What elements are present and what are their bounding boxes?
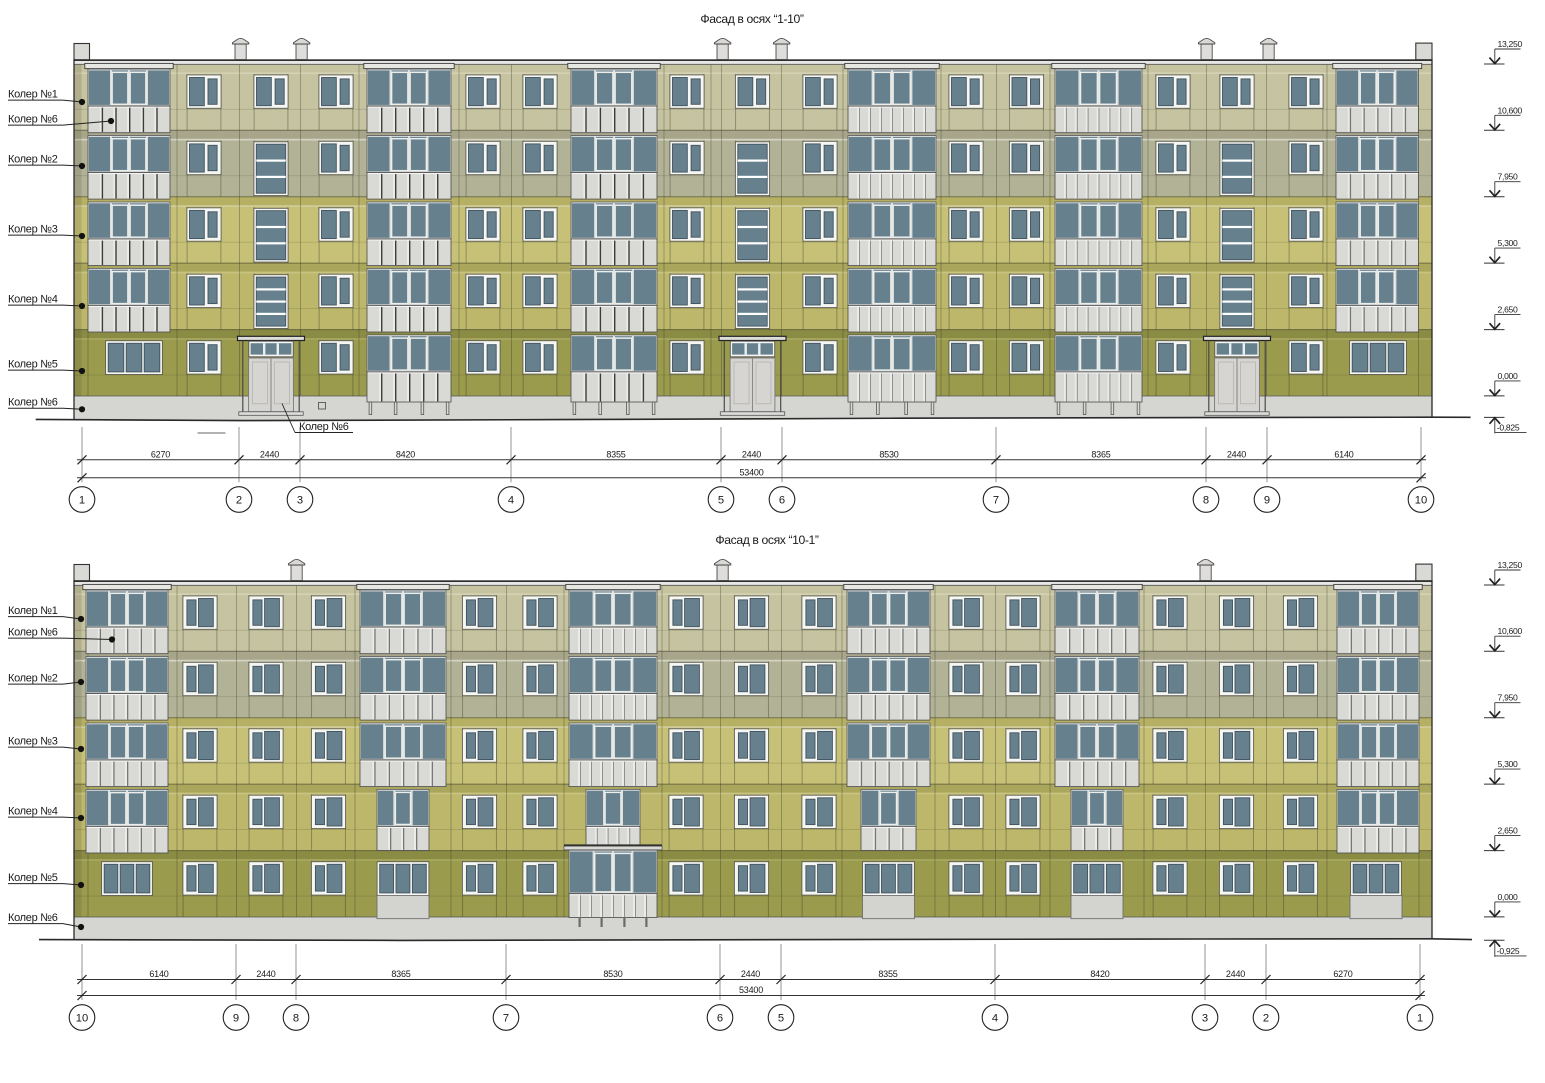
svg-text:7: 7 xyxy=(993,495,999,507)
svg-text:5: 5 xyxy=(718,495,724,507)
svg-text:4: 4 xyxy=(992,1013,998,1025)
svg-text:2,650: 2,650 xyxy=(1498,826,1519,836)
svg-text:Колер №6: Колер №6 xyxy=(299,421,349,433)
svg-text:Колер №6: Колер №6 xyxy=(8,627,58,639)
svg-text:10,600: 10,600 xyxy=(1498,105,1523,115)
svg-text:5,300: 5,300 xyxy=(1498,759,1519,769)
svg-text:-0,925: -0,925 xyxy=(1497,946,1520,956)
svg-text:8355: 8355 xyxy=(606,449,625,459)
svg-text:7,950: 7,950 xyxy=(1498,172,1519,182)
svg-text:5: 5 xyxy=(778,1013,784,1025)
svg-text:Колер №6: Колер №6 xyxy=(8,397,58,409)
svg-text:7,950: 7,950 xyxy=(1498,693,1519,703)
svg-text:6140: 6140 xyxy=(149,969,168,979)
svg-text:7: 7 xyxy=(503,1013,509,1025)
svg-text:Колер №4: Колер №4 xyxy=(8,806,58,818)
svg-text:0,000: 0,000 xyxy=(1498,371,1519,381)
svg-text:Колер №6: Колер №6 xyxy=(8,912,58,924)
svg-text:Фасад в осях “1-10”: Фасад в осях “1-10” xyxy=(700,12,803,26)
svg-text:10: 10 xyxy=(1415,495,1427,507)
svg-text:Колер №5: Колер №5 xyxy=(8,872,58,884)
svg-text:9: 9 xyxy=(1264,495,1270,507)
svg-text:10: 10 xyxy=(76,1013,88,1025)
svg-text:2440: 2440 xyxy=(1227,449,1246,459)
svg-text:Колер №2: Колер №2 xyxy=(8,673,58,685)
svg-text:Колер №2: Колер №2 xyxy=(8,154,58,166)
svg-text:2440: 2440 xyxy=(256,969,275,979)
svg-text:Колер №5: Колер №5 xyxy=(8,359,58,371)
svg-text:5,300: 5,300 xyxy=(1498,238,1519,248)
svg-text:2440: 2440 xyxy=(1226,969,1245,979)
svg-text:4: 4 xyxy=(508,495,514,507)
svg-text:6270: 6270 xyxy=(151,449,170,459)
svg-text:Колер №3: Колер №3 xyxy=(8,736,58,748)
svg-text:8365: 8365 xyxy=(391,969,410,979)
svg-text:2: 2 xyxy=(1263,1013,1269,1025)
svg-text:6: 6 xyxy=(717,1013,723,1025)
svg-text:2440: 2440 xyxy=(742,449,761,459)
svg-text:Колер №3: Колер №3 xyxy=(8,224,58,236)
svg-text:1: 1 xyxy=(79,495,85,507)
svg-text:6: 6 xyxy=(779,495,785,507)
svg-text:8420: 8420 xyxy=(396,449,415,459)
svg-text:6270: 6270 xyxy=(1333,969,1352,979)
svg-text:8530: 8530 xyxy=(879,449,898,459)
svg-text:8420: 8420 xyxy=(1090,969,1109,979)
svg-text:2,650: 2,650 xyxy=(1498,305,1519,315)
svg-text:8355: 8355 xyxy=(878,969,897,979)
svg-text:Колер №6: Колер №6 xyxy=(8,114,58,126)
svg-text:2440: 2440 xyxy=(741,969,760,979)
svg-text:53400: 53400 xyxy=(739,467,763,477)
svg-text:2440: 2440 xyxy=(260,449,279,459)
svg-text:13,250: 13,250 xyxy=(1498,560,1523,570)
svg-text:8365: 8365 xyxy=(1091,449,1110,459)
svg-text:8: 8 xyxy=(293,1013,299,1025)
svg-text:0,000: 0,000 xyxy=(1498,892,1519,902)
svg-text:Колер №1: Колер №1 xyxy=(8,89,58,101)
svg-text:9: 9 xyxy=(233,1013,239,1025)
svg-text:Колер №4: Колер №4 xyxy=(8,294,58,306)
svg-text:6140: 6140 xyxy=(1334,449,1353,459)
svg-text:8530: 8530 xyxy=(603,969,622,979)
svg-text:13,250: 13,250 xyxy=(1498,39,1523,49)
svg-text:53400: 53400 xyxy=(739,985,763,995)
svg-text:3: 3 xyxy=(297,495,303,507)
svg-text:1: 1 xyxy=(1417,1013,1423,1025)
svg-text:3: 3 xyxy=(1202,1013,1208,1025)
svg-text:Фасад в осях “10-1”: Фасад в осях “10-1” xyxy=(715,533,818,547)
svg-text:10,600: 10,600 xyxy=(1498,626,1523,636)
svg-text:-0,825: -0,825 xyxy=(1497,423,1520,433)
svg-text:8: 8 xyxy=(1203,495,1209,507)
svg-text:Колер №1: Колер №1 xyxy=(8,605,58,617)
svg-text:2: 2 xyxy=(236,495,242,507)
